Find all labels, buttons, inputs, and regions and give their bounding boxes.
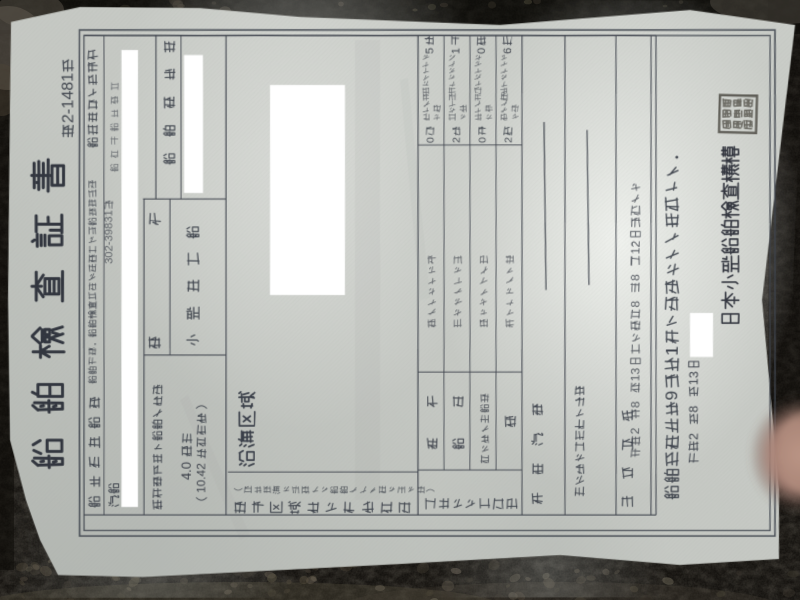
svg-text:2: 2	[686, 433, 701, 440]
svg-text:9: 9	[662, 391, 682, 401]
svg-text:2-1481: 2-1481	[59, 73, 77, 123]
svg-text:10.42: 10.42	[194, 463, 208, 493]
svg-text:302-39831: 302-39831	[103, 210, 115, 264]
svg-text:2: 2	[628, 427, 642, 434]
svg-text:2: 2	[451, 137, 462, 143]
svg-text:1: 1	[450, 48, 462, 54]
svg-text:0: 0	[476, 48, 488, 54]
svg-text:4.0: 4.0	[179, 462, 194, 480]
svg-text:8: 8	[628, 401, 642, 408]
svg-text:6: 6	[502, 48, 514, 54]
svg-text:8: 8	[686, 406, 701, 413]
svg-text:12: 12	[628, 240, 642, 254]
svg-text:13: 13	[628, 368, 642, 382]
svg-text:1: 1	[662, 346, 682, 356]
svg-text:13: 13	[686, 371, 701, 385]
svg-text:5: 5	[424, 48, 436, 54]
svg-text:8: 8	[628, 274, 642, 281]
svg-text:8: 8	[628, 301, 642, 308]
svg-text:0: 0	[425, 137, 436, 143]
svg-text:2: 2	[503, 137, 514, 143]
svg-text:0: 0	[477, 137, 488, 143]
